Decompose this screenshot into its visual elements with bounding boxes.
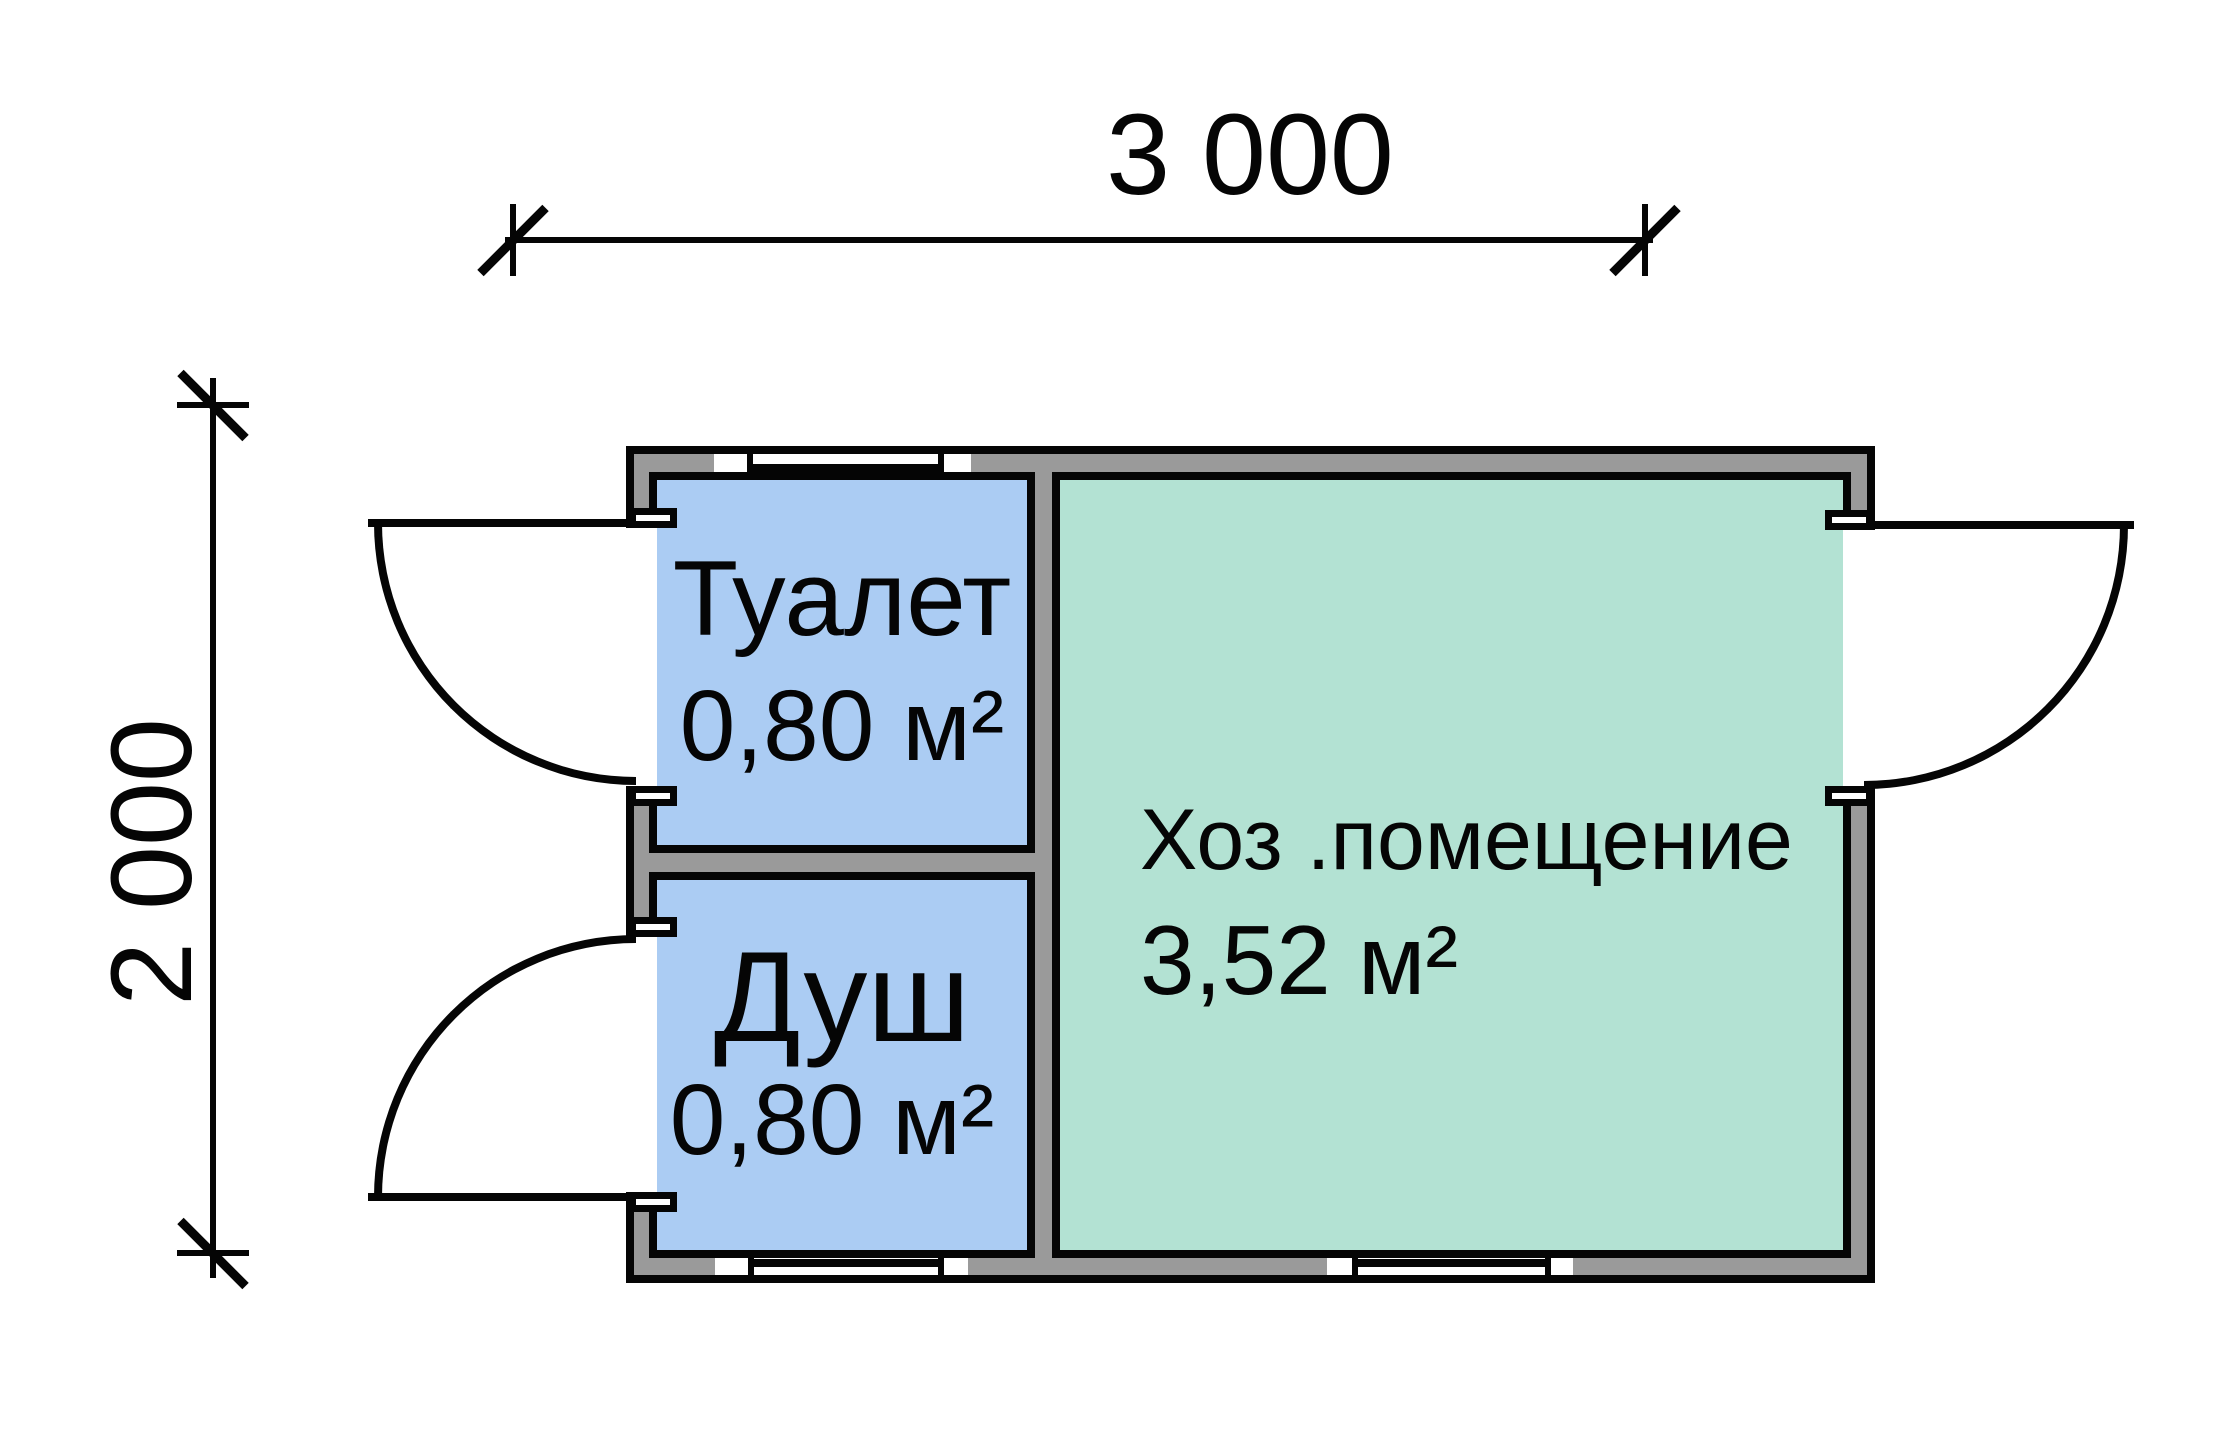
window-glazing-line bbox=[753, 464, 938, 472]
window-shower-bottom bbox=[715, 1258, 968, 1275]
window-mullion bbox=[938, 454, 944, 472]
door-swing-arc-shower bbox=[374, 935, 636, 1197]
window-glazing-line bbox=[1358, 1259, 1545, 1267]
room-utility-name: Хоз .помещение bbox=[1140, 797, 1793, 883]
window-glazing-line bbox=[754, 1259, 938, 1267]
window-utility-bottom bbox=[1327, 1258, 1573, 1275]
door-jamb bbox=[629, 1192, 677, 1212]
floor-plan: 3 000 2 000 Туалет 0,80 м² Душ 0,80 м² Х… bbox=[0, 0, 2225, 1432]
door-swing-arc-toilet bbox=[374, 523, 636, 785]
door-jamb bbox=[1825, 786, 1873, 806]
room-utility-area: 3,52 м² bbox=[1140, 911, 1458, 1009]
dimension-width-label: 3 000 bbox=[1105, 98, 1395, 213]
room-shower-name: Душ bbox=[649, 934, 1035, 1062]
door-jamb bbox=[629, 786, 677, 806]
room-toilet-area: 0,80 м² bbox=[649, 676, 1035, 776]
room-toilet-name: Туалет bbox=[649, 545, 1035, 652]
room-shower-area: 0,80 м² bbox=[639, 1070, 1025, 1170]
dimension-height-label: 2 000 bbox=[96, 717, 208, 1007]
dimension-line-width bbox=[505, 237, 1653, 243]
door-jamb bbox=[629, 508, 677, 528]
window-toilet-top bbox=[714, 454, 971, 472]
room-toilet bbox=[649, 472, 1035, 853]
door-swing-arc-utility bbox=[1864, 525, 2128, 789]
window-mullion bbox=[938, 1258, 944, 1275]
window-mullion bbox=[1545, 1258, 1551, 1275]
